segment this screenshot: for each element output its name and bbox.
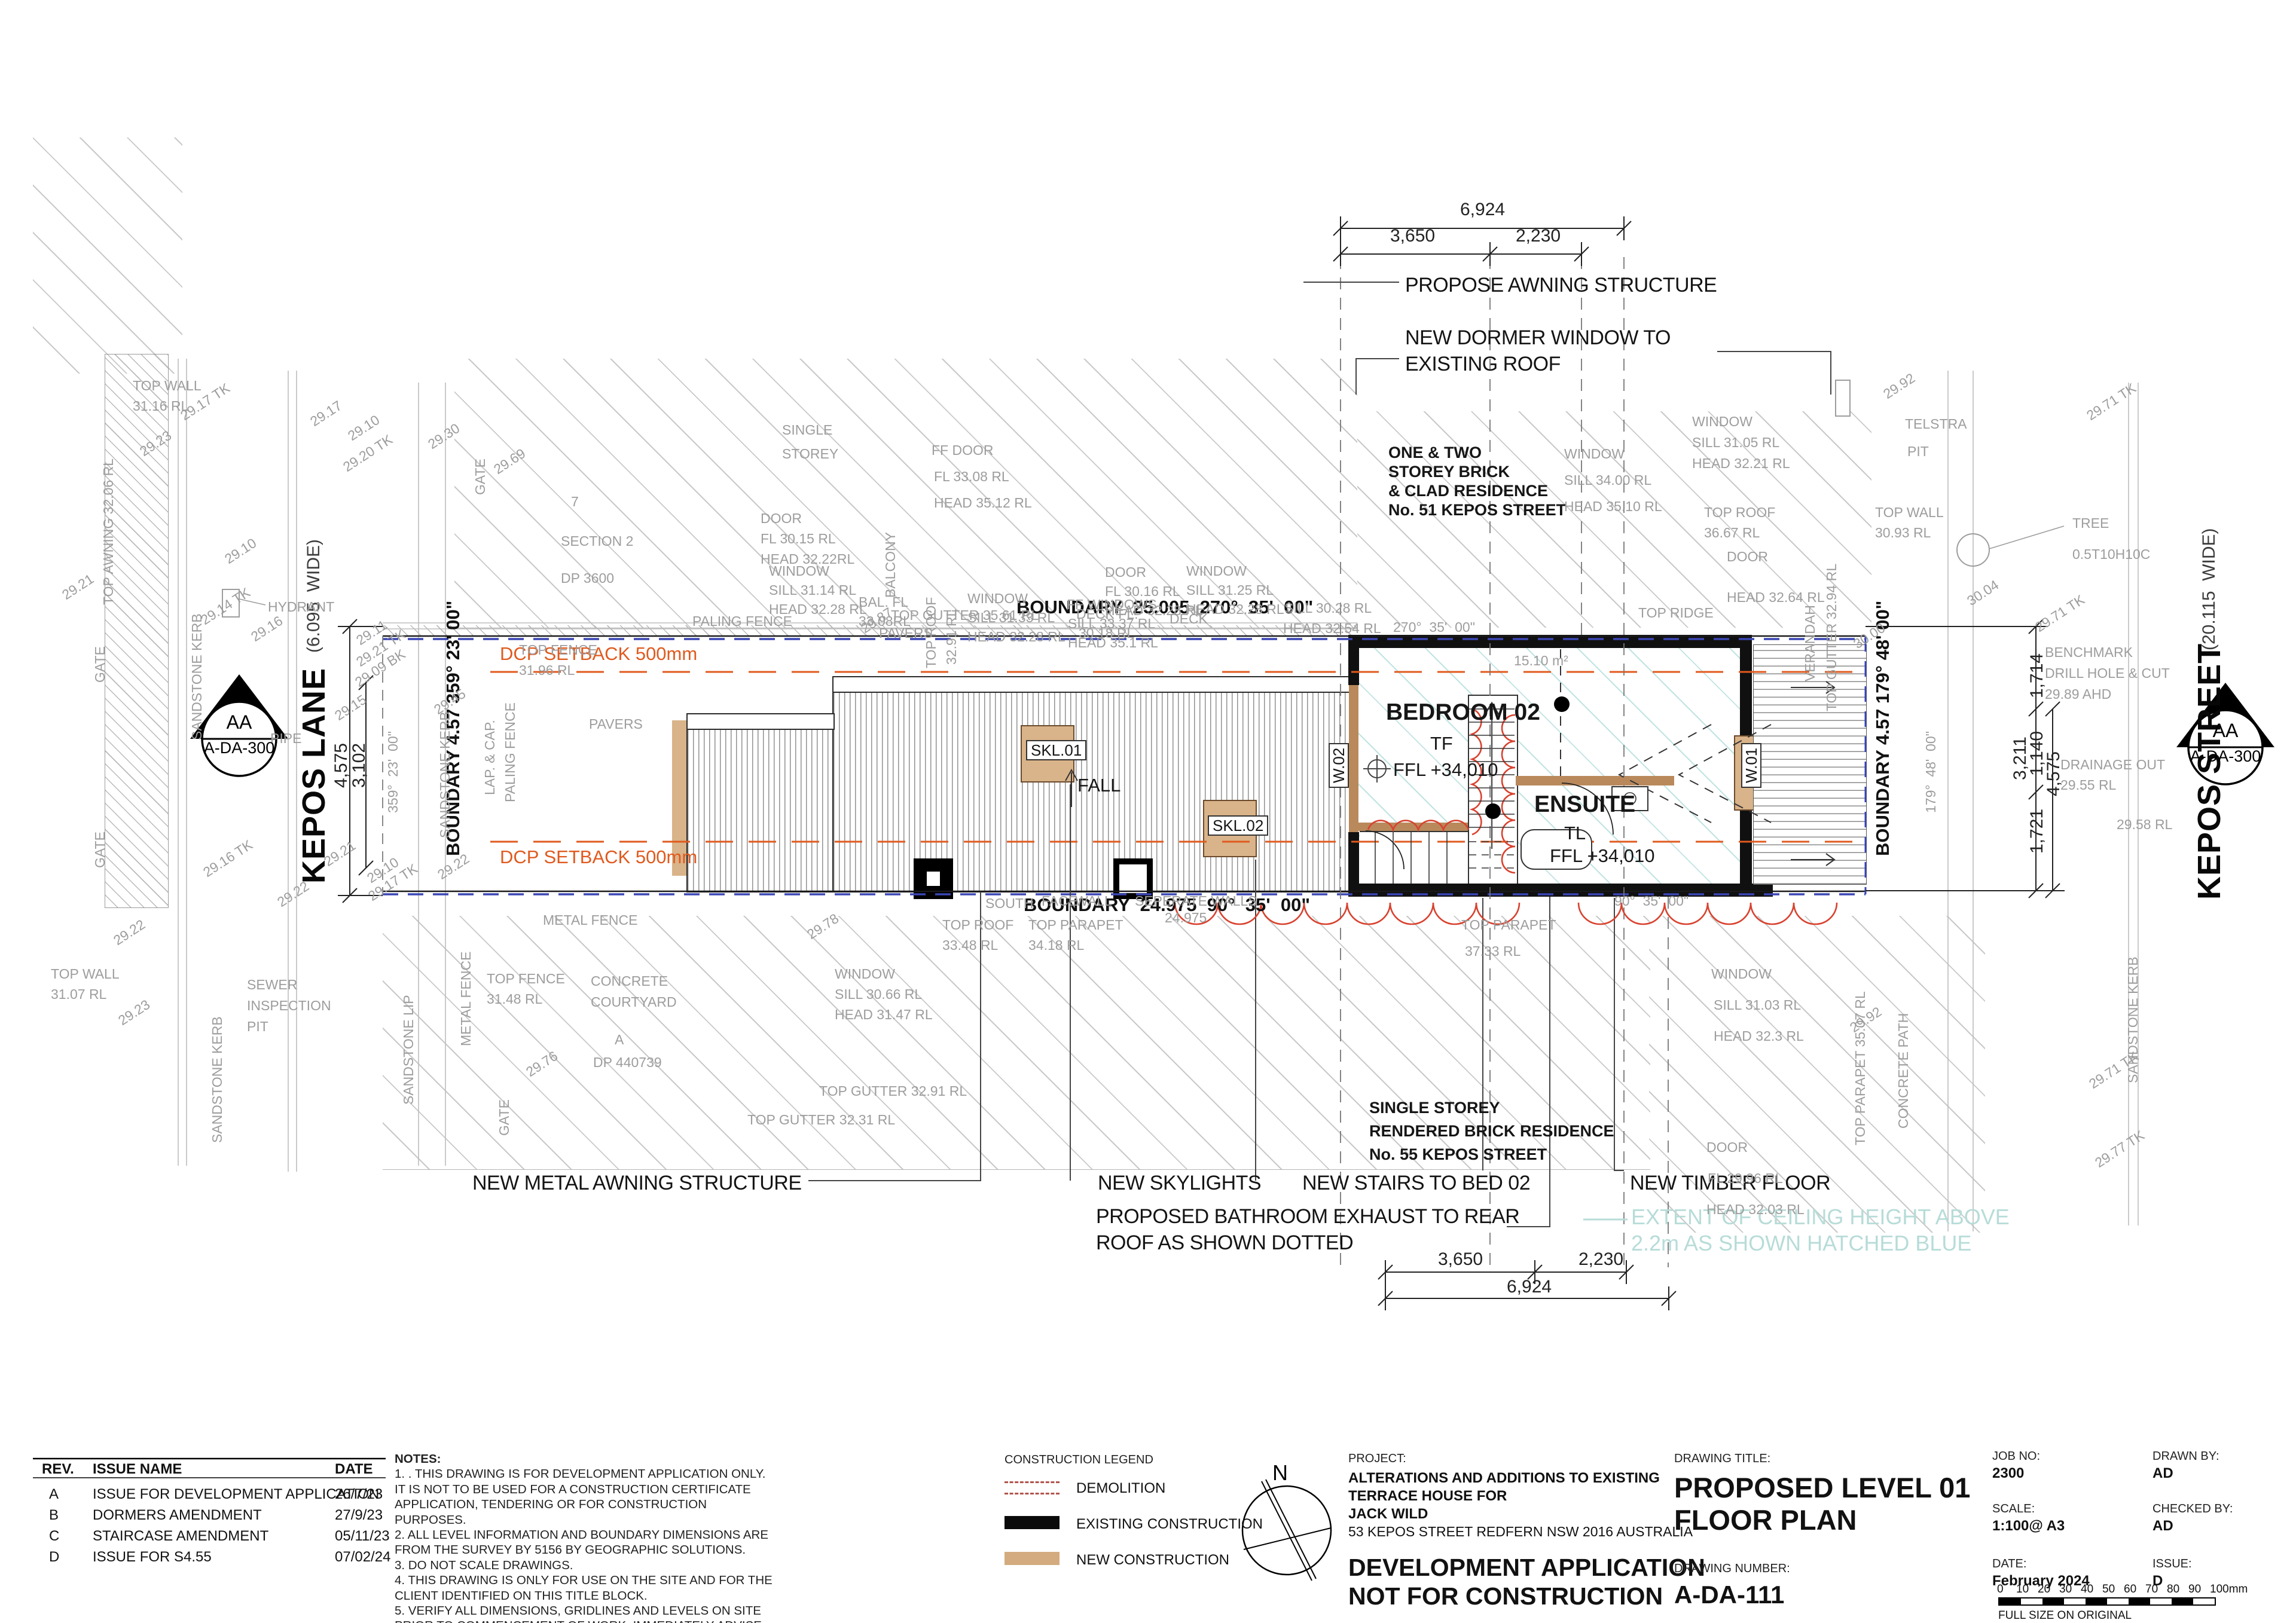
plan-label: NEW DORMER WINDOW TO [1405, 328, 1671, 348]
plan-label: TOP WALL [1875, 506, 1944, 519]
plan-label: TREE [2072, 516, 2109, 530]
plan-label: TOP PARAPET [1028, 918, 1123, 932]
plan-label: 29.55 RL [2060, 778, 2116, 792]
plan-label: TF [1430, 734, 1453, 753]
plan-label: 36.67 RL [1704, 526, 1760, 540]
plan-label: TOP AWNING 32.06 RL [102, 459, 115, 605]
plan-label: METAL FENCE [459, 952, 473, 1046]
plan-label: BENCHMARK [2045, 646, 2133, 659]
plan-label: PROPOSE AWNING STRUCTURE [1405, 275, 1717, 295]
plan-label: WINDOW [967, 592, 1028, 606]
plan-label: STOREY [782, 447, 838, 461]
checked-label: CHECKED BY: [2152, 1502, 2233, 1517]
plan-label: LAP. & CAP. [483, 720, 497, 795]
plan-label: FF DOOR [932, 444, 994, 457]
note-1: 1. . THIS DRAWING IS FOR DEVELOPMENT APP… [395, 1466, 777, 1527]
plan-label: 2,230 [1516, 227, 1561, 245]
plan-label: W.01 [1741, 743, 1761, 788]
plan-label: FFL +34,010 [1393, 760, 1498, 779]
plan-label: SANDSTONE LIP [402, 995, 416, 1105]
plan-label: SANDSTONE KERB [2126, 956, 2140, 1083]
plan-label: SILL 31.25 RL [1186, 583, 1274, 597]
plan-label: HEAD 32.54 RL [1283, 622, 1381, 635]
drawing-number-label: DRAWING NUMBER: [1674, 1561, 1790, 1576]
plan-label: PIT [1907, 445, 1929, 459]
legend-existing-swatch [1004, 1516, 1060, 1529]
plan-label: 6,924 [1507, 1278, 1552, 1296]
plan-label: TOP GUTTER 32.91 RL [819, 1084, 967, 1098]
plan-label: HEAD 32.3 RL [1714, 1029, 1804, 1043]
plan-label: CONCRETE [591, 974, 668, 988]
plan-label: 33.48 RL [942, 939, 998, 952]
plan-label: GATE [497, 1099, 511, 1136]
scalebar-0: 0 [1997, 1583, 2004, 1596]
scalebar-80: 80 [2167, 1583, 2179, 1596]
plan-label: WINDOW [1692, 415, 1752, 429]
plan-label: 4,575 [332, 743, 350, 788]
legend-title: CONSTRUCTION LEGEND [1004, 1453, 1153, 1468]
plan-label: TOP FENCE [519, 643, 597, 657]
plan-label: WINDOW [835, 967, 895, 981]
job-label: JOB NO: [1992, 1449, 2040, 1464]
plan-label: SILL 30.28 RL [1284, 601, 1372, 615]
plan-label: PAVERS [879, 626, 933, 640]
rev-a: A [49, 1486, 59, 1503]
plan-label: NEW SKYLIGHTS [1098, 1173, 1261, 1193]
rev-b: B [49, 1507, 59, 1524]
plan-label: No. 51 KEPOS STREET [1388, 502, 1566, 518]
plan-label: ONE & TWO [1388, 445, 1482, 461]
scalebar-70: 70 [2145, 1583, 2158, 1596]
plan-label: TOP ROOF [942, 918, 1013, 932]
issue-label: ISSUE: [2152, 1557, 2192, 1572]
plan-label: 30.18 RL [1079, 626, 1134, 640]
plan-label: 24.975 [1165, 911, 1207, 925]
plan-label: DOOR [1727, 550, 1768, 564]
plan-label: 6,924 [1460, 201, 1505, 219]
plan-label: KEPOS LANE [298, 668, 330, 884]
plan-label: TOP GUTTER 35.61 RL [891, 609, 1039, 622]
plan-label: EXISTING ROOF [1405, 354, 1561, 374]
plan-label: 29.89 AHD [2045, 687, 2111, 701]
section-marker-label[interactable]: AA [227, 713, 252, 732]
scalebar-10: 10 [2016, 1583, 2029, 1596]
scale-label: SCALE: [1992, 1502, 2035, 1517]
plan-label: SEPERATE WALLS [1135, 894, 1257, 908]
plan-label: 0.5T10H10C [2072, 548, 2150, 561]
plan-label: HEAD 35.10 RL [1564, 500, 1662, 514]
rev-c-name: STAIRCASE AMENDMENT [93, 1528, 268, 1545]
scalebar-40: 40 [2081, 1583, 2093, 1596]
plan-label: ENSUITE [1534, 793, 1635, 816]
north-label: N [1272, 1462, 1288, 1484]
rev-b-date: 27/9/23 [335, 1507, 383, 1524]
plan-label: 7 [571, 495, 579, 509]
plan-label: 90° 35' 00" [1614, 894, 1689, 908]
rev-d-name: ISSUE FOR S4.55 [93, 1549, 212, 1566]
legend-new-label: NEW CONSTRUCTION [1076, 1552, 1229, 1569]
plan-label: No. 55 KEPOS STREET [1369, 1147, 1547, 1163]
plan-label: COURTYARD [591, 995, 677, 1009]
plan-label: STOREY BRICK [1388, 464, 1510, 480]
plan-label: SINGLE STOREY [1369, 1100, 1500, 1116]
plan-label: RENDERED BRICK RESIDENCE [1369, 1123, 1614, 1139]
plan-label: HEAD 32.64 RL [1727, 591, 1825, 604]
plan-label: HEAD 35.12 RL [934, 496, 1032, 510]
project-address: 53 KEPOS STREET REDFERN NSW 2016 AUSTRAL… [1348, 1523, 1693, 1541]
plan-label: 34.18 RL [1028, 939, 1084, 952]
plan-label: PALING FENCE [503, 702, 517, 802]
plan-label: HEAD 32.28 RL [769, 603, 867, 616]
rev-a-date: 26/7/23 [335, 1486, 383, 1503]
stamp-line1: DEVELOPMENT APPLICATION [1348, 1553, 1705, 1582]
plan-label: PIT [247, 1020, 268, 1034]
legend-new-swatch [1004, 1552, 1060, 1565]
plan-label: SOUTH [985, 897, 1034, 910]
plan-label: GATE [93, 646, 107, 683]
plan-label: 29.58 RL [2117, 818, 2172, 832]
plan-label: 37.33 RL [1465, 945, 1521, 958]
plan-label: HEAD 32.03 RL [1706, 1203, 1805, 1217]
plan-label: W.02 [1329, 743, 1349, 788]
plan-label: HYDRANT [268, 600, 334, 614]
plan-label: DRAINAGE OUT [2060, 758, 2165, 772]
plan-label: TOP ROOF [1704, 506, 1775, 519]
rev-d-date: 07/02/24 [335, 1549, 390, 1566]
plan-label: 179° 48' 00" [1924, 731, 1938, 813]
rev-header-name: ISSUE NAME [93, 1461, 182, 1478]
rev-d: D [49, 1549, 59, 1566]
job-value: 2300 [1992, 1465, 2024, 1483]
plan-label: 30.93 RL [1875, 526, 1931, 540]
drawing-number: A-DA-111 [1674, 1579, 1784, 1611]
plan-label: EXTENT OF CEILING HEIGHT ABOVE [1631, 1206, 2010, 1228]
plan-label: TOP GUTTER 32.94 RL [1825, 564, 1839, 711]
floor-plan-sheet: PROPOSE AWNING STRUCTURENEW DORMER WINDO… [0, 0, 2296, 1623]
legend-demolition-label: DEMOLITION [1076, 1480, 1165, 1497]
legend-demolition-swatch [1004, 1481, 1060, 1494]
plan-label: SILL 30.66 RL [835, 988, 922, 1001]
plan-label: 3,102 [350, 743, 368, 788]
drawing-title-line2: FLOOR PLAN [1674, 1504, 1857, 1536]
plan-label: FL 29.96 RL [1708, 1172, 1783, 1185]
plan-label: WINDOW [1564, 447, 1625, 461]
plan-label: TOP WALL [51, 967, 120, 981]
plan-linework [0, 0, 2296, 1623]
rev-c: C [49, 1528, 59, 1545]
plan-label: BEDROOM 02 [1386, 701, 1540, 724]
plan-label: & CLAD RESIDENCE [1388, 483, 1548, 499]
plan-label: 359° 23' 00" [386, 731, 400, 813]
plan-label: 31.48 RL [487, 992, 542, 1006]
plan-label: DECK [1170, 612, 1208, 626]
notes-title: NOTES: [395, 1451, 777, 1466]
plan-label: HEAD 31.47 RL [835, 1008, 933, 1022]
plan-label: 2,230 [1578, 1251, 1623, 1269]
plan-label: TOP WALL [133, 379, 201, 393]
rev-header-date: DATE [335, 1461, 373, 1478]
plan-label: 270° 35' 00" [1393, 621, 1475, 634]
scalebar-90: 90 [2188, 1583, 2201, 1596]
plan-label: NEW METAL AWNING STRUCTURE [472, 1173, 802, 1193]
plan-label: DOOR [1706, 1141, 1748, 1154]
plan-label: TOP FENCE [487, 972, 565, 986]
plan-label: SKL.01 [1026, 740, 1086, 760]
plan-label: DOOR [1105, 566, 1146, 579]
scalebar-note: FULL SIZE ON ORIGINAL [1998, 1609, 2132, 1622]
plan-label: DRILL HOLE & CUT [2045, 667, 2170, 680]
plan-label: (6.095 WIDE) [305, 539, 323, 653]
plan-label: WINDOW [1186, 564, 1247, 578]
plan-label: PAVERS [589, 717, 643, 731]
plan-label: PIPE [270, 732, 301, 745]
plan-label: CONCRETE PATH [1897, 1013, 1910, 1129]
plan-label: DP 440739 [593, 1056, 662, 1069]
drawing-title-line1: PROPOSED LEVEL 01 [1674, 1472, 1970, 1504]
plan-label: TOP PARAPET [1461, 918, 1556, 932]
plan-label: DECK FL. [1076, 607, 1138, 621]
plan-label: TOP GUTTER 32.31 RL [747, 1113, 895, 1127]
plan-label: PROPOSED BATHROOM EXHAUST TO REAR [1096, 1206, 1519, 1227]
plan-label: TOP RIDGE [1638, 606, 1714, 620]
rev-header-rev: REV. [42, 1461, 74, 1478]
plan-label: SANDSTONE KERB [190, 613, 204, 740]
plan-label: FL 33.08 RL [934, 470, 1009, 484]
plan-label: NEW STAIRS TO BED 02 [1302, 1173, 1530, 1193]
scalebar-30: 30 [2059, 1583, 2072, 1596]
plan-label: A [615, 1033, 624, 1047]
drawing-title-label: DRAWING TITLE: [1674, 1451, 1770, 1466]
plan-label: FL 30.15 RL [761, 532, 836, 546]
plan-label: (20.115 WIDE) [2200, 528, 2218, 650]
legend-existing-label: EXISTING CONSTRUCTION [1076, 1516, 1263, 1533]
plan-label: DCP SETBACK 500mm [500, 848, 697, 866]
plan-label: FALL [1077, 776, 1120, 794]
drawn-label: DRAWN BY: [2152, 1449, 2219, 1464]
plan-label: TELSTRA [1905, 417, 1967, 431]
checked-value: AD [2152, 1517, 2173, 1535]
project-client: JACK WILD [1348, 1505, 1428, 1523]
plan-label: WINDOW [1711, 967, 1772, 981]
plan-label: GATE [474, 459, 487, 495]
note-3: 3. DO NOT SCALE DRAWINGS. [395, 1558, 777, 1573]
section-marker-label-right[interactable]: AA [2213, 721, 2239, 740]
scalebar-bar [1998, 1597, 2216, 1606]
notes-block: NOTES: 1. . THIS DRAWING IS FOR DEVELOPM… [395, 1451, 777, 1623]
plan-label: TL [1564, 824, 1586, 842]
note-2: 2. ALL LEVEL INFORMATION AND BOUNDARY DI… [395, 1527, 777, 1558]
plan-label: SANDSTONE KERB [438, 711, 452, 838]
scalebar-50: 50 [2102, 1583, 2115, 1596]
rev-b-name: DORMERS AMENDMENT [93, 1507, 262, 1524]
plan-label: ROOF AS SHOWN DOTTED [1096, 1233, 1353, 1253]
scalebar-20: 20 [2038, 1583, 2050, 1596]
plan-label: SEWER [247, 978, 297, 992]
plan-label: 1,714 [2028, 653, 2046, 698]
plan-label: WALL [1075, 894, 1112, 908]
plan-label: FL 30.16 RL [1105, 585, 1180, 598]
rev-c-date: 05/11/23 [335, 1528, 390, 1545]
plan-label: SILL 31.14 RL [769, 583, 856, 597]
plan-label: DP 3600 [561, 571, 614, 585]
plan-label: 2.2m AS SHOWN HATCHED BLUE [1631, 1233, 1971, 1254]
project-label: PROJECT: [1348, 1451, 1406, 1466]
note-4: 4. THIS DRAWING IS ONLY FOR USE ON THE S… [395, 1573, 777, 1603]
plan-label: SANDSTONE KERB [210, 1016, 224, 1143]
plan-label: SECTION 2 [561, 534, 633, 548]
stamp-line2: NOT FOR CONSTRUCTION [1348, 1582, 1663, 1611]
plan-label: WINDOW [769, 564, 829, 578]
scalebar-60: 60 [2124, 1583, 2136, 1596]
project-name: ALTERATIONS AND ADDITIONS TO EXISTING TE… [1348, 1469, 1683, 1505]
plan-label: BALCONY [884, 532, 897, 598]
note-5: 5. VERIFY ALL DIMENSIONS, GRIDLINES AND … [395, 1603, 777, 1623]
plan-label: HEAD 32.21 RL [1692, 457, 1790, 470]
plan-label: SINGLE [782, 423, 832, 437]
plan-label: SKL.02 [1208, 815, 1268, 836]
plan-label: SILL 31.05 RL [1692, 436, 1779, 450]
date-label: DATE: [1992, 1557, 2026, 1572]
plan-label: FFL +34,010 [1550, 846, 1655, 865]
scalebar-100: 100mm [2210, 1583, 2248, 1596]
plan-label: TOP PARAPET 35.07 RL [1854, 991, 1867, 1145]
scale-value: 1:100@ A3 [1992, 1517, 2065, 1535]
plan-label: VERANDAH [1803, 605, 1817, 681]
plan-label: INSPECTION [247, 999, 331, 1013]
plan-label: HEAD 32.28 RL [967, 630, 1065, 644]
plan-label: GATE [93, 832, 107, 868]
section-marker-ref[interactable]: A-DA-300 [204, 740, 275, 756]
plan-label: SILL 34.00 RL [1564, 473, 1651, 487]
plan-label: KEPOS STREET [2193, 643, 2225, 900]
plan-label: 31.07 RL [51, 988, 106, 1001]
plan-label: FACE [1042, 894, 1077, 908]
plan-label: METAL FENCE [543, 913, 637, 927]
plan-label: 3,650 [1390, 227, 1435, 245]
plan-label: 3,650 [1438, 1251, 1483, 1269]
plan-label: 31.96 RL [519, 664, 575, 677]
plan-label: 1,721 [2028, 809, 2046, 854]
plan-label: DOOR [761, 512, 802, 525]
plan-label: SILL 31.03 RL [1714, 998, 1801, 1012]
plan-label: 15.10 m² [1514, 654, 1568, 668]
drawn-value: AD [2152, 1465, 2173, 1483]
section-marker-ref-right[interactable]: A-DA-300 [2190, 748, 2261, 765]
